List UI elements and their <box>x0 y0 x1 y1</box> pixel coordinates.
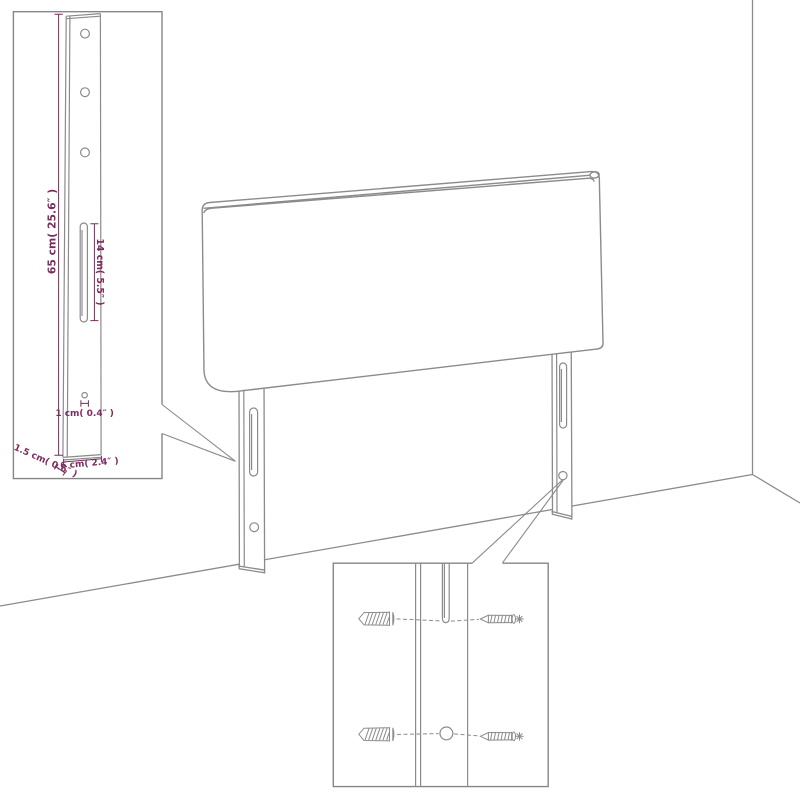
inset-leg-hole-3 <box>81 148 90 157</box>
inset-leg-small-hole <box>82 393 87 398</box>
screw-detail-inset-border <box>333 563 548 786</box>
inset-leg-right-edge <box>100 14 101 455</box>
inset-leg-slot <box>80 223 87 322</box>
headboard-panel <box>202 171 603 391</box>
right-leg-hole <box>559 472 567 480</box>
hole-size-label: 1 cm( 0.4″ ) <box>55 409 114 419</box>
slot-length-label: 14 cm( 5.5″ ) <box>94 239 105 306</box>
leg-detail-callout-line-lower <box>162 434 236 462</box>
left-leg-side-edge-line <box>244 390 245 567</box>
leg-detail-inset: 65 cm( 25.6″ ) 14 cm( 5.5″ ) 1 cm( 0.4″ … <box>12 12 162 480</box>
diagram-canvas: 65 cm( 25.6″ ) 14 cm( 5.5″ ) 1 cm( 0.4″ … <box>0 0 800 800</box>
leg-detail-callout-line-upper <box>162 405 236 462</box>
inset-leg-hole-1 <box>81 29 90 38</box>
inset-leg-hole-2 <box>81 88 90 97</box>
left-leg-hole <box>250 523 259 532</box>
right-leg-slot <box>560 363 567 428</box>
detail-callouts <box>162 405 563 563</box>
floor-wall-line-right <box>753 475 800 504</box>
screw-detail-inset <box>333 563 548 786</box>
detail-leg-hole <box>440 727 453 740</box>
screw-detail-callout-line-right <box>503 480 564 563</box>
left-leg-slot <box>250 408 258 476</box>
assembly-diagram: 65 cm( 25.6″ ) 14 cm( 5.5″ ) 1 cm( 0.4″ … <box>0 0 800 800</box>
leg-height-label: 65 cm( 25.6″ ) <box>46 189 59 274</box>
